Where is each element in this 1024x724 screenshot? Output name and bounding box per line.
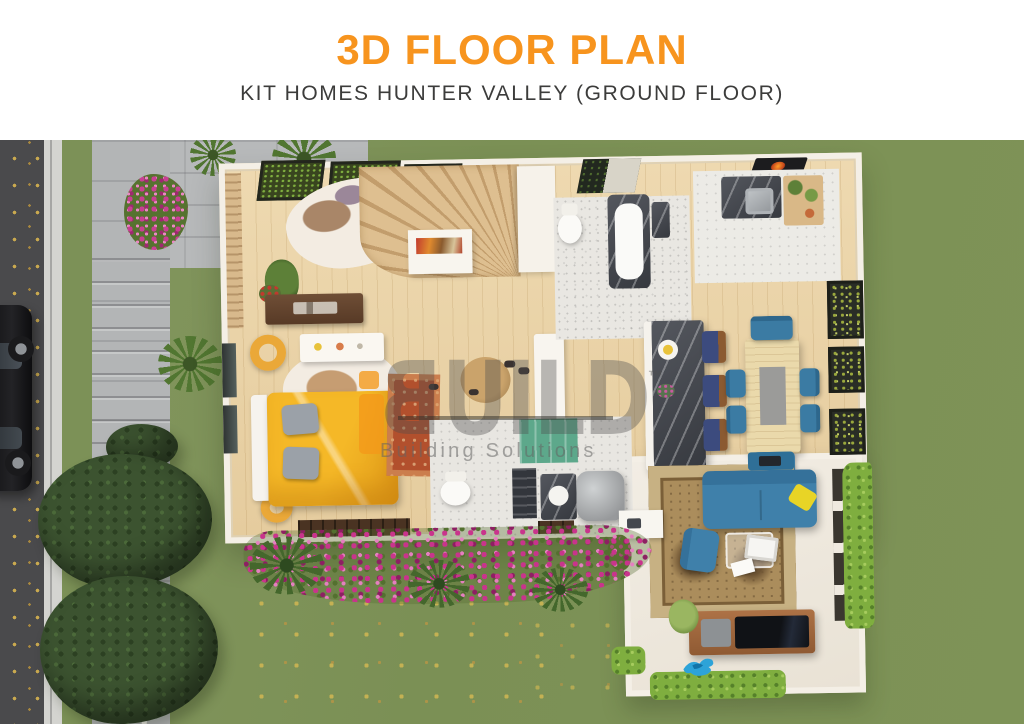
page-subtitle: KIT HOMES HUNTER VALLEY (GROUND FLOOR) (0, 82, 1024, 106)
shoes (429, 384, 439, 390)
hedge (842, 462, 875, 628)
dining-chair (726, 405, 746, 433)
bathroom-shelf (512, 468, 537, 518)
bathroom-vanity (540, 473, 577, 520)
stair-wall (517, 166, 557, 273)
laundry-sink (745, 188, 773, 214)
hedge (611, 646, 645, 675)
timber-bench-plants (783, 175, 824, 226)
page: 3D FLOOR PLAN KIT HOMES HUNTER VALLEY (G… (0, 0, 1024, 724)
bedroom-window (223, 405, 238, 453)
shoes (469, 389, 479, 395)
speaker-box (701, 619, 731, 648)
house (0, 140, 1024, 724)
bed-headboard (251, 395, 269, 501)
shoes (518, 367, 529, 374)
window-planter (827, 280, 864, 339)
shoes (504, 360, 515, 367)
hedge (650, 670, 786, 700)
page-title: 3D FLOOR PLAN (0, 26, 1024, 74)
bar-stool (703, 419, 728, 451)
header: 3D FLOOR PLAN KIT HOMES HUNTER VALLEY (G… (0, 0, 1024, 140)
television (735, 615, 810, 648)
timber-slat-wall (225, 173, 244, 328)
skylight-window (577, 158, 642, 193)
bed-pillow (281, 403, 319, 436)
floor-plan-render: BUILD ™ Building Solutions (0, 140, 1024, 724)
dresser (300, 333, 384, 362)
blue-console (748, 452, 794, 471)
wall-artwork (416, 237, 462, 254)
bed-pillow (282, 447, 319, 480)
dining-chair (725, 369, 745, 397)
green-cabinet (519, 418, 578, 463)
table-runner (759, 367, 786, 425)
bedroom-window (222, 343, 237, 397)
bar-stool (702, 375, 727, 407)
bathtub (607, 194, 651, 289)
closet-bench (534, 334, 566, 423)
armchair (679, 527, 720, 574)
water-tank (576, 471, 625, 522)
bird-decal (681, 653, 717, 680)
hall-console-desk (265, 293, 364, 325)
dining-chair (799, 368, 819, 396)
fern-plant (532, 567, 589, 612)
indoor-plant (668, 599, 699, 634)
window-planter (828, 346, 865, 393)
dining-chair (800, 404, 820, 432)
window-planter (829, 408, 866, 455)
bathroom-vanity (651, 202, 670, 238)
dining-chair (750, 316, 792, 341)
bar-stool (702, 331, 727, 363)
